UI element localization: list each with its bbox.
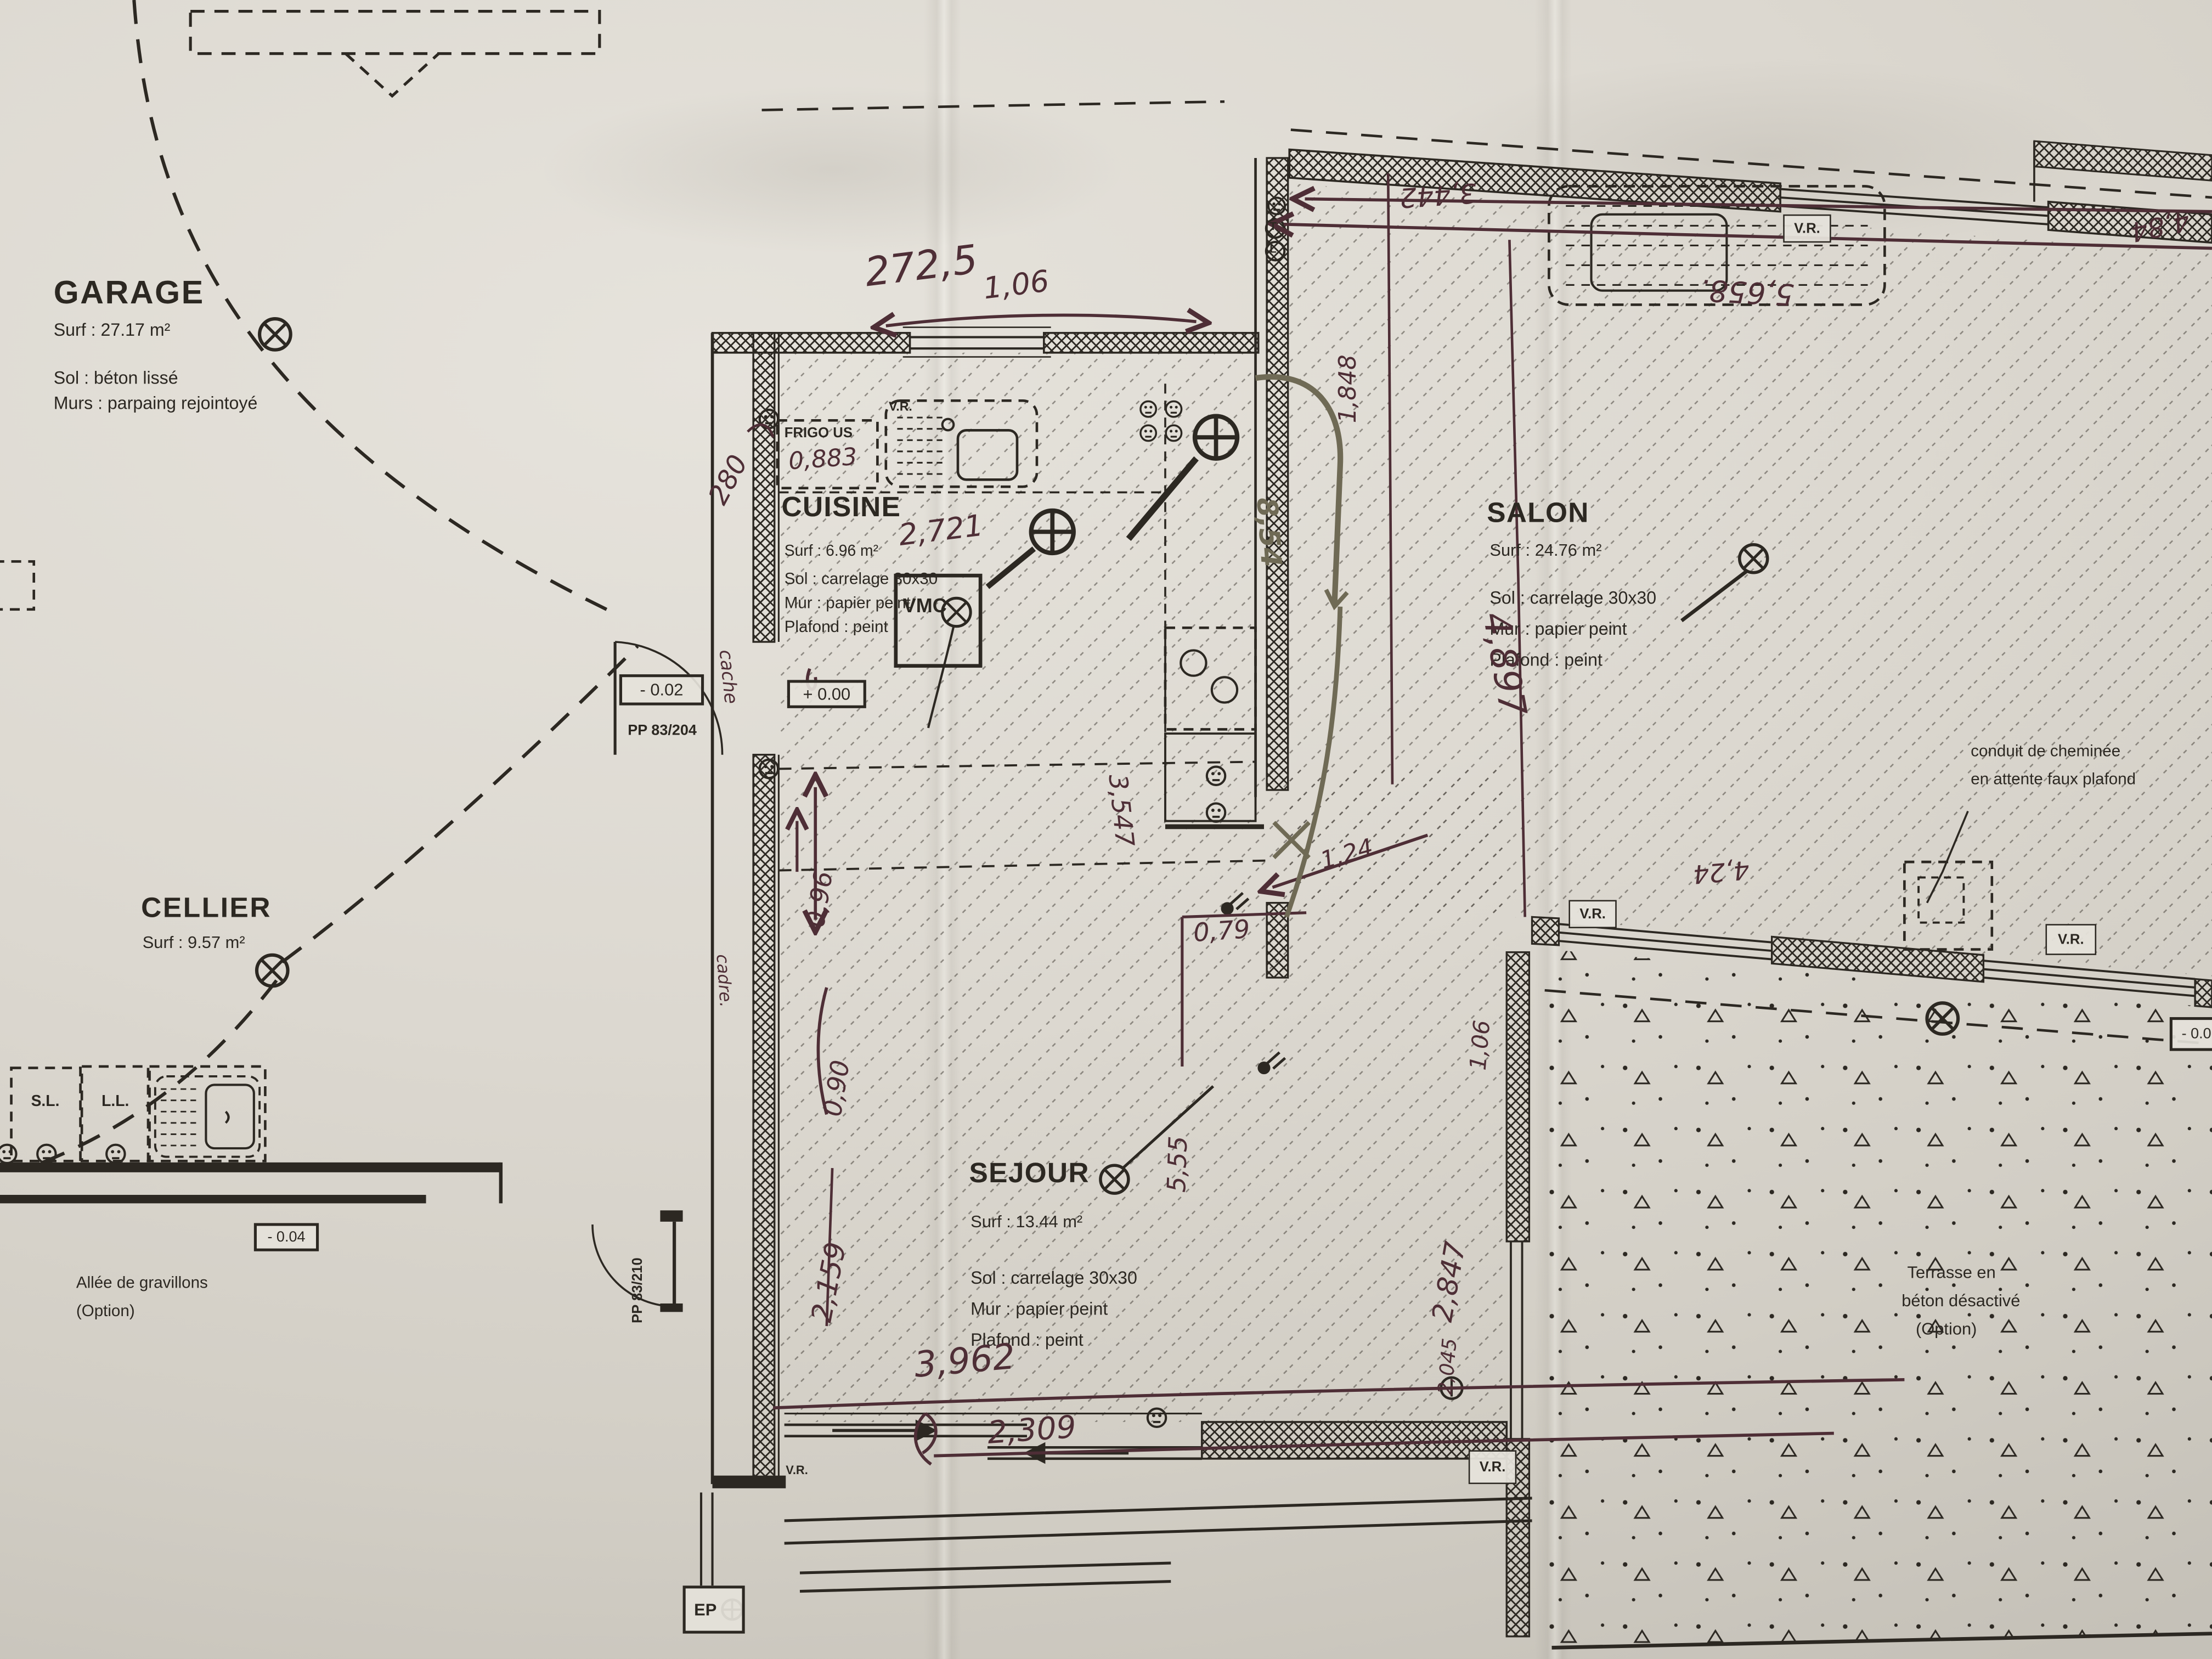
salon-floor: Sol : carrelage 30x30 — [1489, 590, 1656, 607]
garage-walls: Murs : parpaing rejointoyé — [54, 395, 258, 413]
room-title-cuisine: CUISINE — [782, 494, 901, 522]
floor-plan-drawing — [0, 0, 2212, 1659]
vr-box-terrace-window: V.R. — [1469, 1450, 1516, 1484]
cuisine-floor: Sol : carrelage 30x30 — [785, 573, 938, 589]
cuisine-surface: Surf : 6.96 m² — [785, 545, 878, 560]
vr-label-cuisine-window: V.R. — [889, 400, 912, 413]
tv-outlet-letter: T — [1269, 222, 1277, 233]
hw-dim-0-79: 0,79 — [1193, 918, 1251, 947]
cellier-surface: Surf : 9.57 m² — [143, 934, 245, 951]
hw-dim-5-55: 5,55 — [1165, 1136, 1193, 1193]
cellier-sink-basin — [206, 1085, 253, 1148]
hw-note-cache: cache — [715, 649, 740, 705]
conduit-note-2: en attente faux plafond — [1971, 773, 2136, 789]
washer-sl-outline — [12, 1068, 81, 1161]
washer-ll-label: L.L. — [101, 1094, 129, 1110]
wall-light-cuisine-icon — [1031, 511, 1074, 553]
vr-box-salon-bottom-window-right: V.R. — [2046, 924, 2097, 955]
hw-dim-3-442-upside: 3,442 — [1398, 178, 1477, 210]
garage-floor: Sol : béton lissé — [54, 370, 178, 387]
vr-label-bay-window: V.R. — [786, 1464, 808, 1476]
sejour-wall: Mur : papier peint — [970, 1301, 1108, 1318]
ceiling-light-cellier-icon — [257, 955, 288, 986]
hw-dim-5-658-upside: 5,658. — [1699, 274, 1795, 309]
hw-dim-1-06-vertical: 1,06 — [1467, 1019, 1494, 1071]
allee-label-1: Allée de gravillons — [76, 1277, 208, 1293]
vr-box-salon-bottom-window-left: V.R. — [1568, 900, 1616, 928]
terrace-surface — [1532, 948, 2212, 1647]
garage-surface: Surf : 27.17 m² — [54, 321, 171, 339]
level-box-minus-004: - 0.04 — [254, 1223, 319, 1251]
hw-dim-1-848: 1,848 — [1338, 354, 1362, 423]
hw-dim-2-045: 2,045 — [1436, 1338, 1461, 1396]
terrasse-label-2: béton désactivé — [1901, 1292, 2020, 1309]
hw-dim-4-24-upside: 4,24 — [1692, 855, 1751, 885]
hw-note-cadre: cadre. — [714, 953, 735, 1008]
garage-door — [190, 12, 600, 96]
hw-dim-3-962: 3,962 — [913, 1339, 1017, 1383]
door-ref-pp210: PP 83/210 — [632, 1257, 646, 1323]
ep-box: EP — [683, 1585, 745, 1633]
vr-box-salon-top-window: V.R. — [1783, 215, 1831, 242]
sejour-surface: Surf : 13.44 m² — [970, 1213, 1082, 1230]
ceiling-light-garage-icon — [259, 319, 291, 350]
paper-sheet: GARAGE Surf : 27.17 m² Sol : béton lissé… — [0, 0, 2212, 1659]
cuisine-ceiling: Plafond : peint — [785, 620, 888, 637]
terrasse-label-3: (Option) — [1916, 1321, 1977, 1338]
room-title-cellier: CELLIER — [141, 894, 272, 922]
level-box-terrace: - 0.0 — [2170, 1017, 2212, 1051]
room-title-salon: SALON — [1487, 499, 1589, 527]
sejour-floor: Sol : carrelage 30x30 — [970, 1269, 1137, 1287]
hw-dim-1-06: 1,06 — [981, 267, 1051, 304]
wall-light-corner-icon — [1195, 416, 1237, 459]
washer-sl-label: S.L. — [31, 1094, 60, 1110]
salon-surface: Surf : 24.76 m² — [1489, 541, 1601, 558]
allee-label-2: (Option) — [76, 1305, 135, 1322]
fridge-label: FRIGO US — [785, 427, 853, 442]
door-ref-pp204: PP 83/204 — [628, 724, 697, 738]
phone-outlet-letter: L — [1269, 244, 1277, 256]
floor-plan-photo: GARAGE Surf : 27.17 m² Sol : béton lissé… — [0, 0, 2212, 1659]
boundary-dashed-lines — [0, 0, 637, 1168]
terrasse-label-1: Terrasse en — [1908, 1264, 1996, 1281]
level-box-minus-002: - 0.02 — [619, 674, 704, 706]
hw-dim-0-883: 0,883 — [788, 446, 858, 475]
hw-dim-3-547: 3,547 — [1103, 773, 1136, 848]
washer-ll-outline — [82, 1066, 148, 1161]
level-box-plus-000: + 0.00 — [787, 680, 866, 708]
room-title-garage: GARAGE — [54, 276, 205, 309]
cuisine-wall: Mur : papier peint — [785, 597, 911, 613]
vmc-label: VMC — [903, 595, 947, 615]
hw-dim-8-54: 8,54 — [1253, 496, 1286, 568]
conduit-note-1: conduit de cheminée — [1971, 745, 2120, 761]
room-title-sejour: SEJOUR — [969, 1160, 1090, 1188]
hw-dim-2-309: 2,309 — [986, 1413, 1077, 1451]
